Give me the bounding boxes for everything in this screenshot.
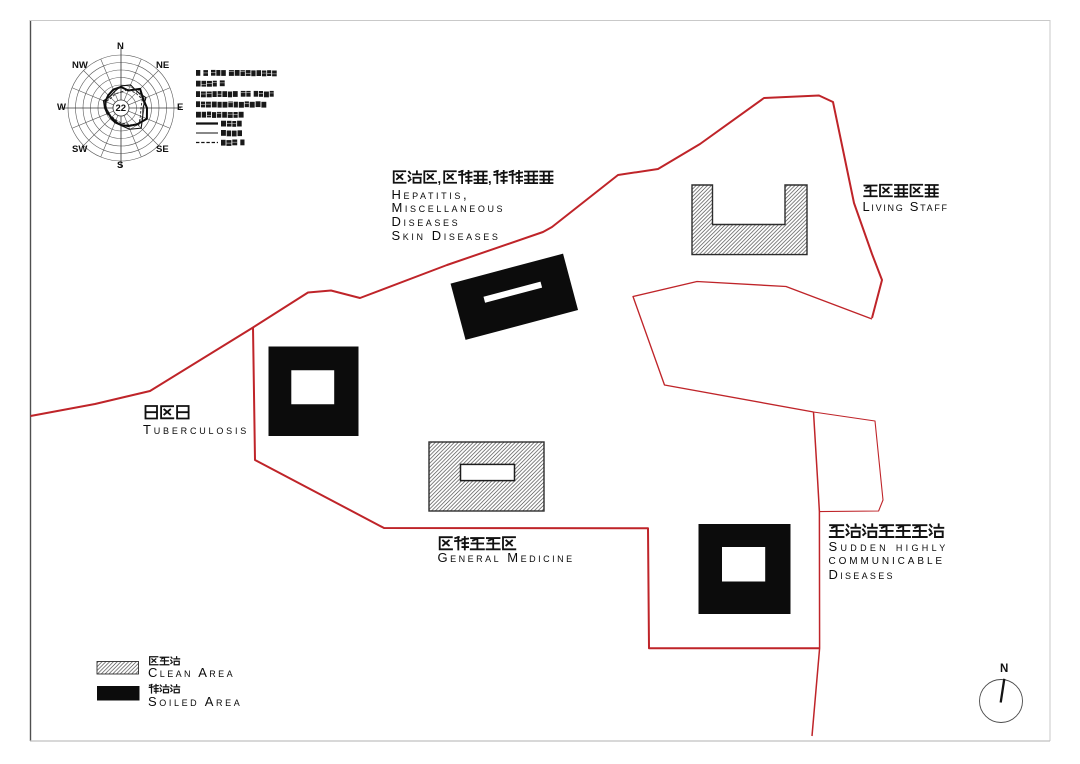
svg-text:,: , [438, 171, 442, 186]
svg-text:,: , [488, 171, 492, 186]
